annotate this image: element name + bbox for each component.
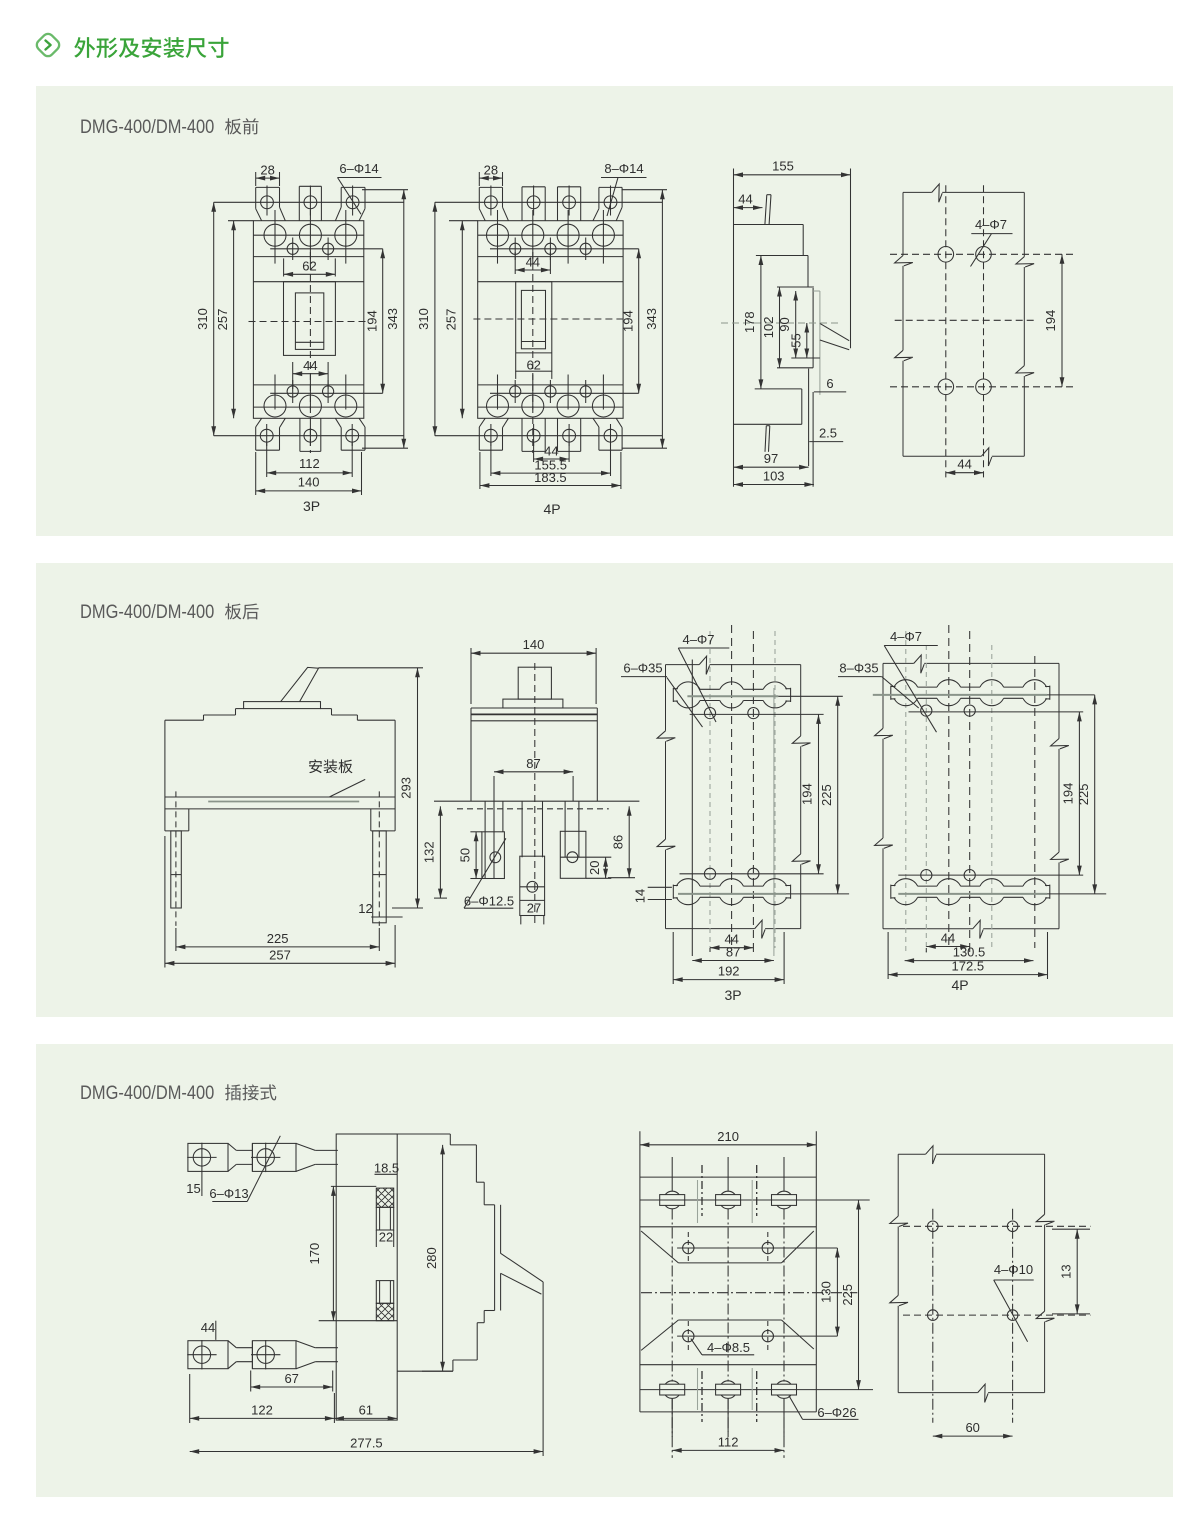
svg-text:3P: 3P	[303, 498, 320, 514]
svg-text:44: 44	[941, 931, 955, 946]
svg-text:4–Φ10: 4–Φ10	[994, 1262, 1033, 1277]
svg-text:210: 210	[717, 1129, 739, 1144]
svg-text:130.5: 130.5	[953, 945, 986, 960]
svg-text:293: 293	[399, 777, 414, 799]
svg-text:140: 140	[298, 474, 320, 489]
svg-text:18.5: 18.5	[374, 1161, 399, 1176]
svg-text:12: 12	[358, 901, 372, 916]
svg-text:44: 44	[201, 1320, 215, 1335]
svg-text:44: 44	[303, 358, 317, 373]
svg-text:172.5: 172.5	[952, 959, 985, 974]
svg-text:20: 20	[587, 861, 602, 875]
svg-text:225: 225	[1076, 784, 1091, 806]
svg-text:4P: 4P	[951, 977, 968, 993]
svg-text:277.5: 277.5	[350, 1436, 383, 1451]
svg-text:6: 6	[826, 376, 833, 391]
svg-text:DMG-400/DM-400: DMG-400/DM-400	[80, 601, 214, 623]
svg-text:194: 194	[364, 310, 379, 332]
svg-text:28: 28	[260, 163, 274, 178]
svg-text:130: 130	[819, 1281, 834, 1303]
svg-text:6–Φ14: 6–Φ14	[339, 161, 378, 176]
svg-text:257: 257	[444, 309, 459, 331]
svg-text:140: 140	[523, 637, 545, 652]
svg-text:343: 343	[644, 308, 659, 330]
svg-text:310: 310	[416, 308, 431, 330]
svg-text:2.5: 2.5	[819, 426, 837, 441]
svg-text:4–Φ7: 4–Φ7	[682, 632, 714, 647]
svg-text:DMG-400/DM-400: DMG-400/DM-400	[80, 1082, 214, 1104]
svg-text:4–Φ7: 4–Φ7	[890, 629, 922, 644]
svg-text:67: 67	[284, 1371, 298, 1386]
svg-text:44: 44	[544, 444, 558, 459]
svg-text:13: 13	[1058, 1264, 1073, 1278]
svg-text:62: 62	[302, 258, 316, 273]
svg-text:44: 44	[738, 192, 752, 207]
svg-text:97: 97	[764, 451, 778, 466]
svg-text:310: 310	[195, 308, 210, 330]
svg-text:194: 194	[1061, 783, 1076, 805]
svg-text:155: 155	[772, 159, 794, 174]
svg-text:225: 225	[267, 931, 289, 946]
svg-text:87: 87	[526, 756, 540, 771]
svg-text:225: 225	[819, 784, 834, 806]
svg-text:15: 15	[186, 1181, 200, 1196]
svg-text:55: 55	[789, 333, 804, 347]
svg-text:6–Φ35: 6–Φ35	[623, 661, 662, 676]
svg-text:122: 122	[251, 1402, 273, 1417]
svg-text:8–Φ14: 8–Φ14	[604, 161, 643, 176]
svg-text:27: 27	[527, 901, 541, 916]
svg-text:62: 62	[526, 357, 540, 372]
svg-text:257: 257	[269, 947, 291, 962]
svg-text:14: 14	[633, 889, 648, 903]
svg-text:6–Φ26: 6–Φ26	[817, 1405, 856, 1420]
svg-text:194: 194	[620, 310, 635, 332]
svg-text:192: 192	[718, 964, 740, 979]
svg-text:4P: 4P	[543, 501, 560, 517]
svg-text:DMG-400/DM-400: DMG-400/DM-400	[80, 116, 214, 138]
svg-text:8–Φ35: 8–Φ35	[839, 661, 878, 676]
svg-text:44: 44	[957, 457, 971, 472]
svg-text:183.5: 183.5	[534, 470, 567, 485]
svg-text:22: 22	[379, 1230, 393, 1245]
svg-text:194: 194	[800, 783, 815, 805]
svg-text:112: 112	[299, 456, 320, 471]
svg-text:225: 225	[840, 1284, 855, 1306]
svg-text:280: 280	[424, 1247, 439, 1269]
svg-text:194: 194	[1043, 310, 1058, 332]
svg-text:50: 50	[457, 848, 472, 862]
svg-text:61: 61	[359, 1402, 373, 1417]
svg-text:178: 178	[742, 311, 757, 333]
svg-text:90: 90	[777, 317, 792, 331]
svg-text:4–Φ8.5: 4–Φ8.5	[707, 1340, 750, 1355]
svg-text:257: 257	[215, 309, 230, 331]
svg-text:112: 112	[718, 1434, 739, 1449]
svg-text:4–Φ7: 4–Φ7	[975, 217, 1007, 232]
svg-text:102: 102	[761, 317, 776, 339]
svg-text:3P: 3P	[724, 987, 741, 1003]
svg-text:132: 132	[422, 841, 437, 863]
svg-text:170: 170	[307, 1243, 322, 1265]
svg-text:87: 87	[726, 945, 740, 960]
svg-text:28: 28	[484, 163, 498, 178]
svg-text:86: 86	[611, 835, 626, 849]
svg-text:60: 60	[965, 1420, 979, 1435]
svg-text:103: 103	[763, 469, 785, 484]
svg-text:343: 343	[385, 308, 400, 330]
svg-text:6–Φ13: 6–Φ13	[209, 1186, 248, 1201]
